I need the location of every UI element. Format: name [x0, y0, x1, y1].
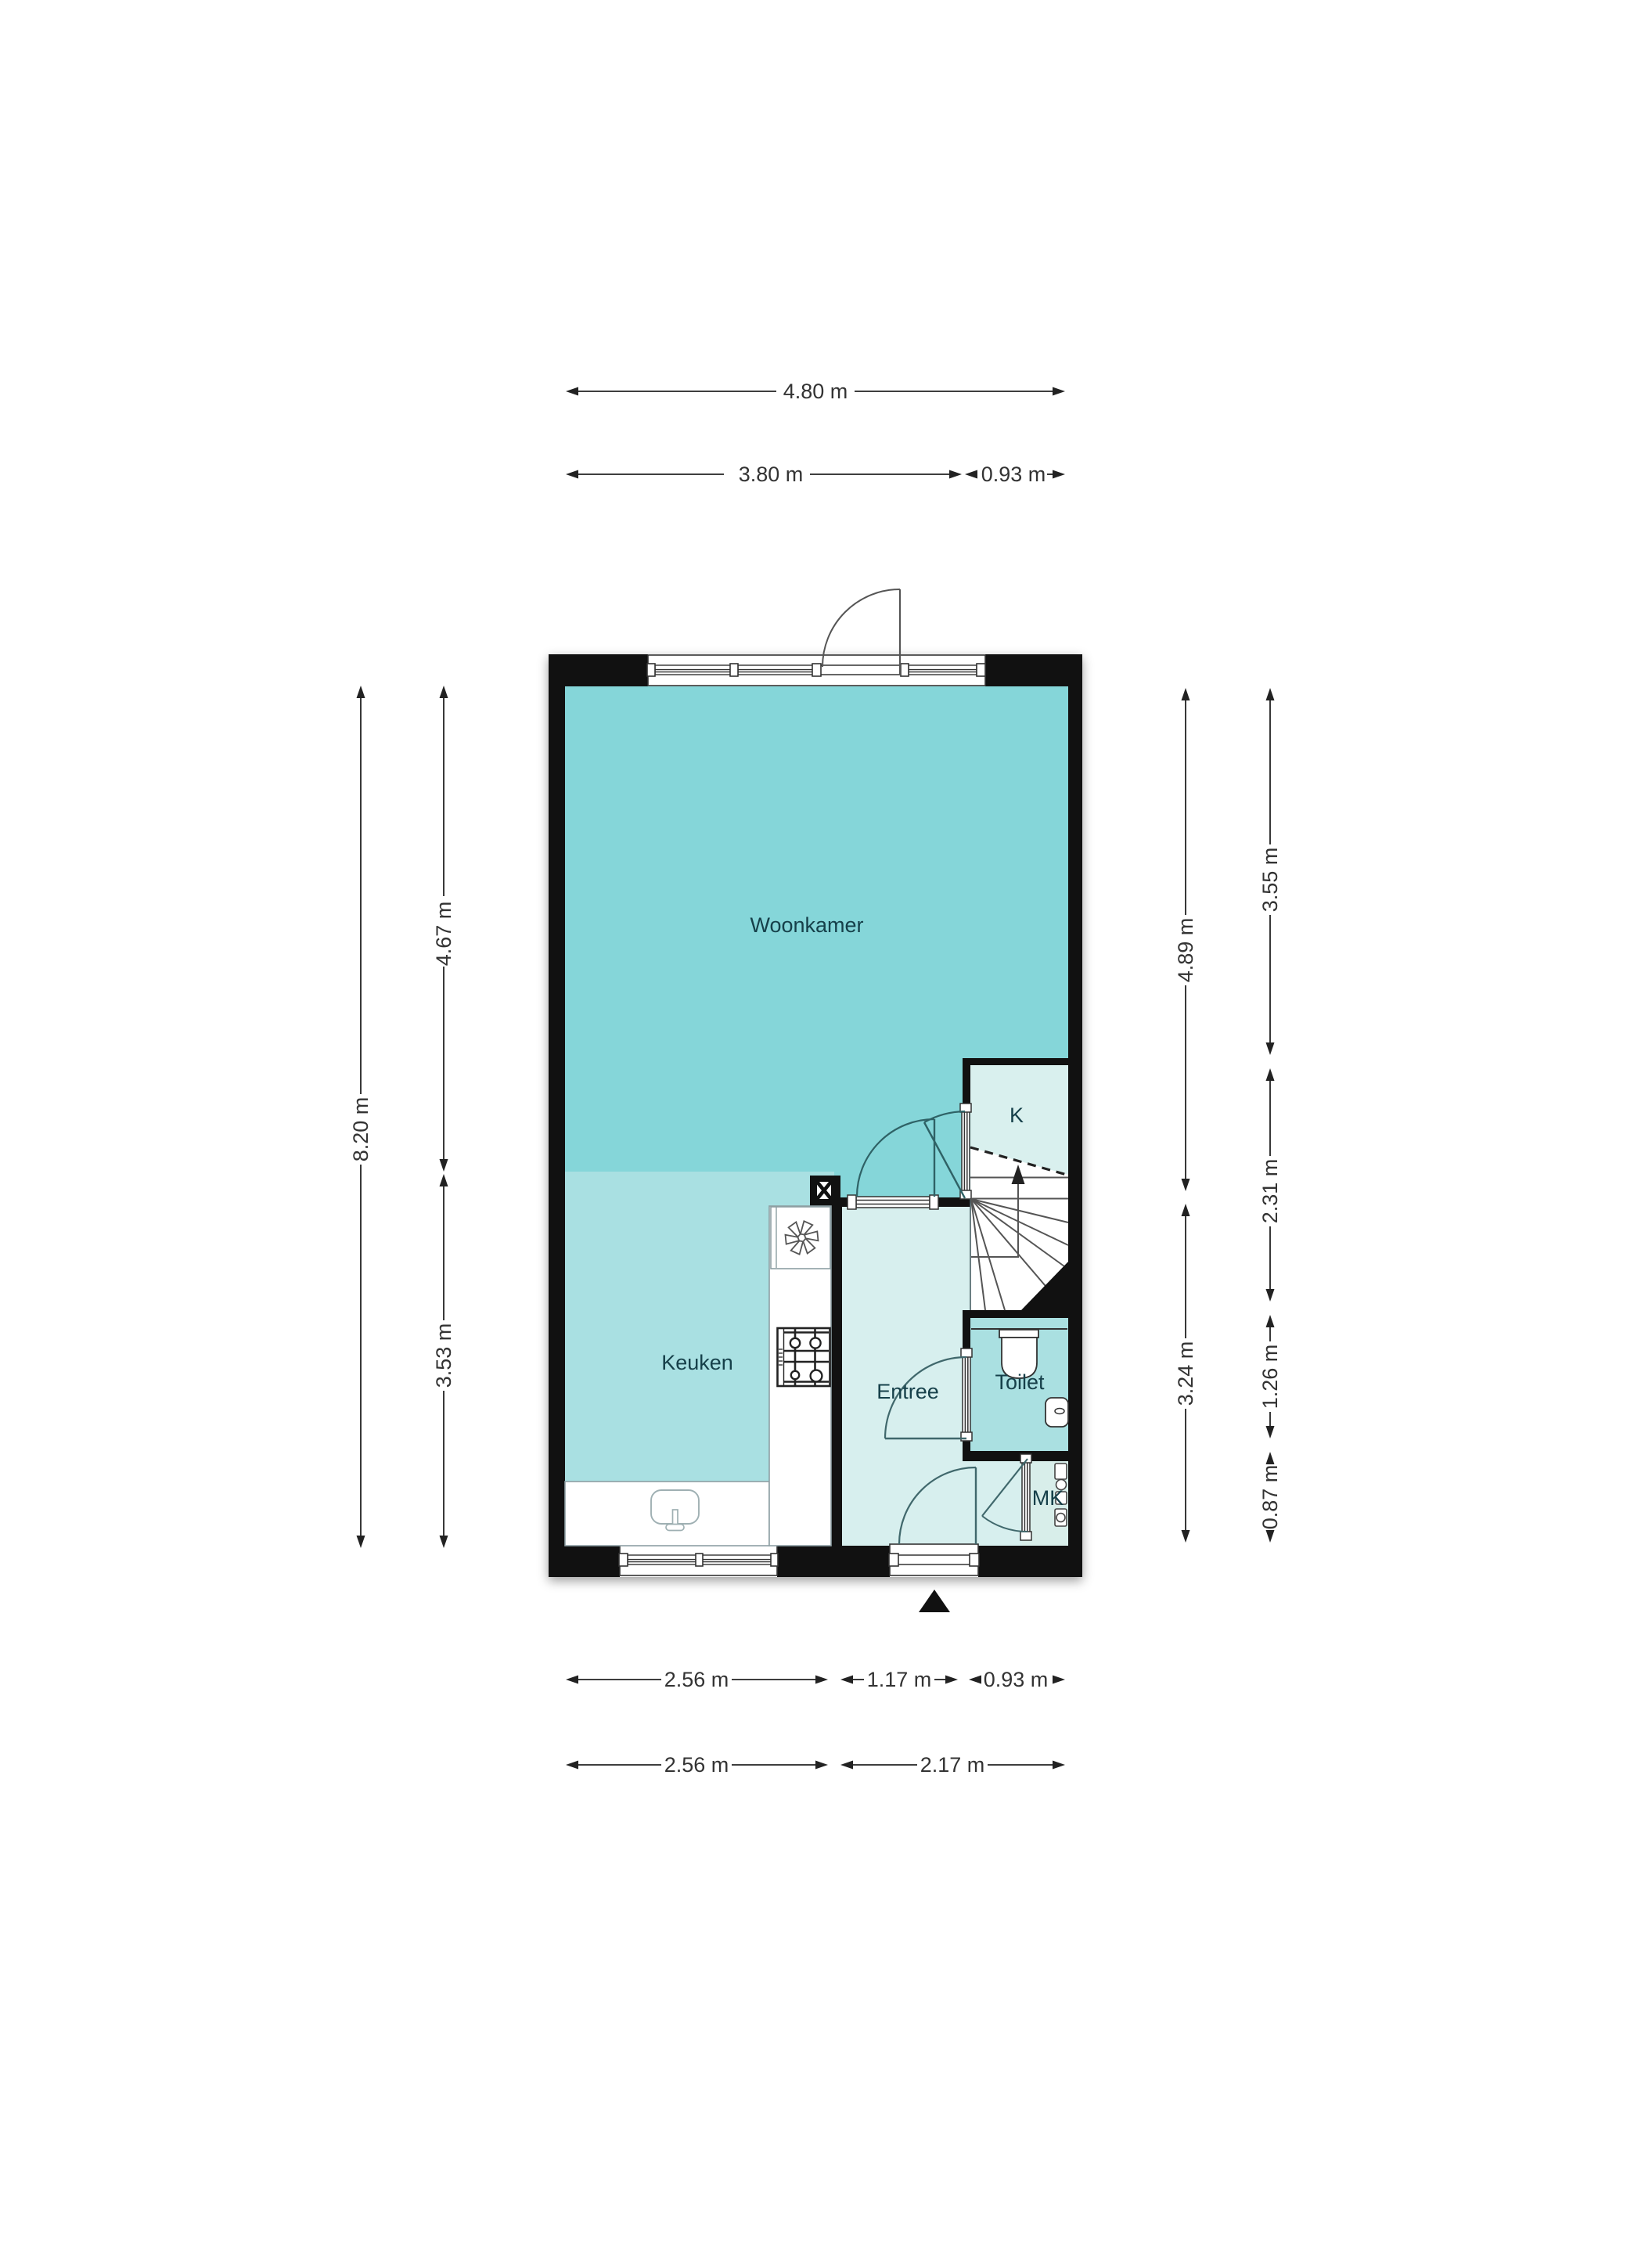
- svg-text:Entree: Entree: [876, 1380, 939, 1403]
- svg-text:4.80 m: 4.80 m: [783, 380, 848, 403]
- svg-text:0.87 m: 0.87 m: [1258, 1465, 1282, 1530]
- svg-text:3.53 m: 3.53 m: [432, 1323, 455, 1388]
- svg-text:MK: MK: [1032, 1486, 1064, 1510]
- svg-text:2.31 m: 2.31 m: [1258, 1159, 1282, 1224]
- svg-text:Keuken: Keuken: [661, 1351, 733, 1374]
- svg-text:8.20 m: 8.20 m: [349, 1097, 373, 1162]
- svg-text:2.56 m: 2.56 m: [664, 1668, 729, 1691]
- svg-text:3.24 m: 3.24 m: [1174, 1341, 1197, 1406]
- svg-text:K: K: [1010, 1104, 1024, 1127]
- svg-text:Toilet: Toilet: [995, 1370, 1045, 1394]
- svg-text:2.17 m: 2.17 m: [920, 1753, 985, 1777]
- svg-text:0.93 m: 0.93 m: [981, 463, 1046, 486]
- svg-text:3.55 m: 3.55 m: [1258, 848, 1282, 913]
- svg-text:Woonkamer: Woonkamer: [750, 913, 863, 937]
- svg-text:1.17 m: 1.17 m: [867, 1668, 932, 1691]
- svg-text:2.56 m: 2.56 m: [664, 1753, 729, 1777]
- svg-text:4.67 m: 4.67 m: [432, 902, 455, 967]
- svg-text:0.93 m: 0.93 m: [984, 1668, 1049, 1691]
- svg-text:3.80 m: 3.80 m: [739, 463, 804, 486]
- svg-text:1.26 m: 1.26 m: [1258, 1345, 1282, 1410]
- svg-text:4.89 m: 4.89 m: [1174, 918, 1197, 983]
